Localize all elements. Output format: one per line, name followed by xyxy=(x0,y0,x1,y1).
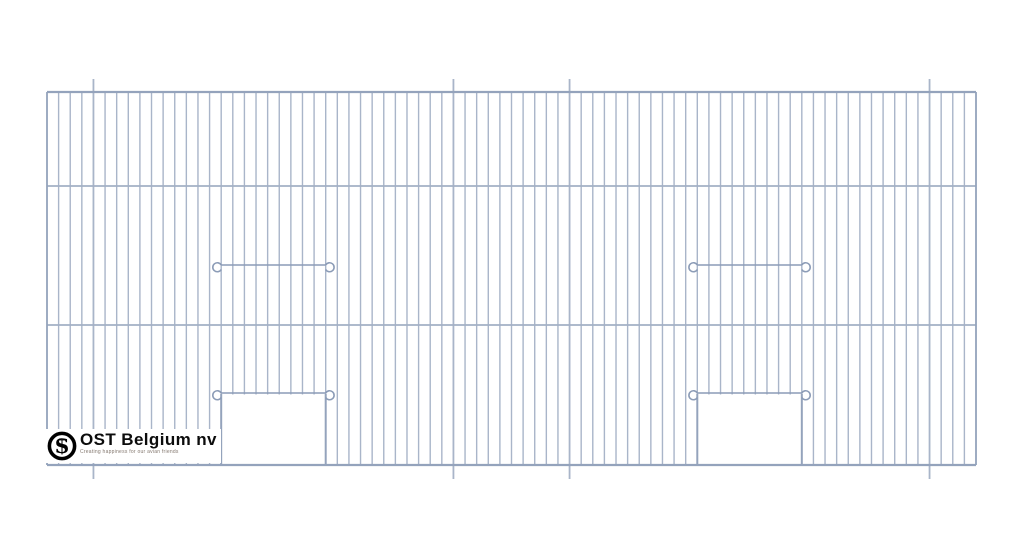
latch-bar-left-hook xyxy=(689,263,697,272)
logo-text-block: OST Belgium nv Creating happiness for ou… xyxy=(80,429,217,455)
cage-front-panel-drawing xyxy=(0,0,1024,559)
latch-bar-right-hook xyxy=(326,263,334,272)
logo-company-name: OST Belgium nv xyxy=(80,431,217,448)
latch-bar-left-hook xyxy=(213,391,221,400)
logo-tagline: Creating happiness for our avian friends xyxy=(80,449,217,455)
latch-bar-left-hook xyxy=(213,263,221,272)
technical-drawing-page: S OST Belgium nv Creating happiness for … xyxy=(0,0,1024,559)
ost-monogram-icon: S xyxy=(46,429,78,463)
latch-bar-right-hook xyxy=(326,391,334,400)
latch-bar-left-hook xyxy=(689,391,697,400)
door-opening xyxy=(698,395,801,465)
latch-bar-right-hook xyxy=(802,263,810,272)
door-opening xyxy=(222,395,325,465)
ost-belgium-logo: S OST Belgium nv Creating happiness for … xyxy=(46,429,221,463)
latch-bar-right-hook xyxy=(802,391,810,400)
